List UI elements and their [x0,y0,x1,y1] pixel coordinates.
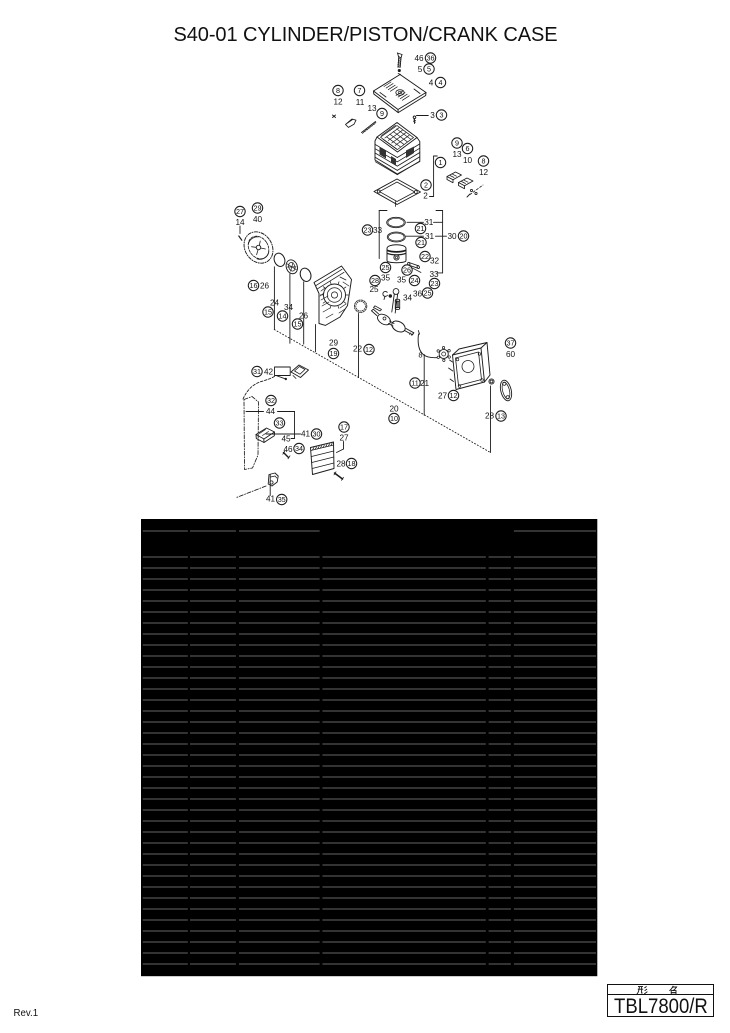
svg-text:27: 27 [339,434,349,443]
svg-text:13: 13 [497,412,505,421]
svg-text:31: 31 [253,367,261,376]
svg-text:14: 14 [235,218,245,227]
svg-text:TBL7800/R: TBL7800/R [614,995,708,1016]
svg-text:37: 37 [507,339,515,348]
svg-text:2: 2 [424,181,428,190]
svg-text:25: 25 [382,263,390,272]
svg-text:41: 41 [301,430,311,439]
svg-text:31: 31 [424,218,434,227]
svg-text:32: 32 [430,257,440,266]
svg-text:8: 8 [418,351,422,360]
svg-text:31: 31 [425,232,435,241]
svg-text:14: 14 [279,312,287,321]
svg-text:25: 25 [369,285,379,294]
svg-text:28: 28 [371,276,379,285]
svg-text:28: 28 [485,412,495,421]
svg-text:20: 20 [389,405,399,414]
svg-text:20: 20 [460,232,468,241]
svg-text:35: 35 [278,495,286,504]
svg-text:27: 27 [438,392,448,401]
svg-text:7: 7 [358,86,362,95]
svg-text:21: 21 [417,238,425,247]
svg-text:41: 41 [266,495,276,504]
svg-text:29: 29 [254,204,262,213]
svg-text:9: 9 [380,109,384,118]
svg-text:44: 44 [266,407,276,416]
svg-text:9: 9 [455,139,459,148]
svg-text:33: 33 [373,226,383,235]
svg-text:33: 33 [276,419,284,428]
svg-text:12: 12 [450,391,458,400]
svg-text:45: 45 [281,435,291,444]
svg-text:17: 17 [340,423,348,432]
svg-text:35: 35 [397,276,407,285]
svg-text:26: 26 [260,282,270,291]
svg-text:60: 60 [506,350,516,359]
svg-text:28: 28 [336,460,346,469]
svg-text:32: 32 [267,396,275,405]
svg-text:3: 3 [440,111,444,120]
svg-text:16: 16 [250,281,258,290]
svg-text:25: 25 [424,289,432,298]
svg-text:29: 29 [329,339,339,348]
svg-text:18: 18 [348,459,356,468]
svg-text:36: 36 [427,54,435,63]
svg-text:30: 30 [447,232,457,241]
svg-text:34: 34 [403,294,413,303]
svg-text:46: 46 [414,54,424,63]
svg-text:12: 12 [333,98,343,107]
svg-text:34: 34 [295,444,303,453]
svg-text:35: 35 [381,274,391,283]
svg-text:8: 8 [336,86,340,95]
svg-text:33: 33 [429,270,439,279]
svg-text:4: 4 [439,78,443,87]
svg-text:36: 36 [413,290,423,299]
svg-text:30: 30 [313,430,321,439]
svg-text:13: 13 [452,150,462,159]
svg-text:34: 34 [284,303,294,312]
svg-text:46: 46 [283,445,293,454]
svg-text:11: 11 [411,379,418,388]
svg-text:8: 8 [482,157,486,166]
svg-text:3: 3 [430,111,435,120]
svg-text:11: 11 [356,98,365,107]
svg-text:19: 19 [330,349,338,358]
svg-text:12: 12 [365,345,373,354]
svg-text:10: 10 [463,156,473,165]
svg-text:15: 15 [264,308,272,317]
svg-text:21: 21 [420,379,430,388]
svg-text:27: 27 [236,207,244,216]
svg-text:5: 5 [427,65,431,74]
svg-text:23: 23 [364,226,372,235]
svg-text:22: 22 [353,345,363,354]
svg-text:15: 15 [294,320,302,329]
svg-text:10: 10 [390,414,398,423]
svg-text:23: 23 [431,279,439,288]
svg-text:22: 22 [421,252,429,261]
svg-text:4: 4 [429,79,434,88]
svg-text:40: 40 [253,215,263,224]
svg-text:2: 2 [423,192,428,201]
svg-text:5: 5 [418,65,423,74]
svg-text:24: 24 [270,299,280,308]
svg-text:13: 13 [367,104,377,113]
svg-text:1: 1 [439,158,443,167]
svg-text:12: 12 [479,168,489,177]
svg-text:42: 42 [264,368,274,377]
svg-text:6: 6 [466,144,470,153]
svg-text:24: 24 [411,276,419,285]
svg-text:26: 26 [299,312,309,321]
svg-text:26: 26 [403,266,411,275]
